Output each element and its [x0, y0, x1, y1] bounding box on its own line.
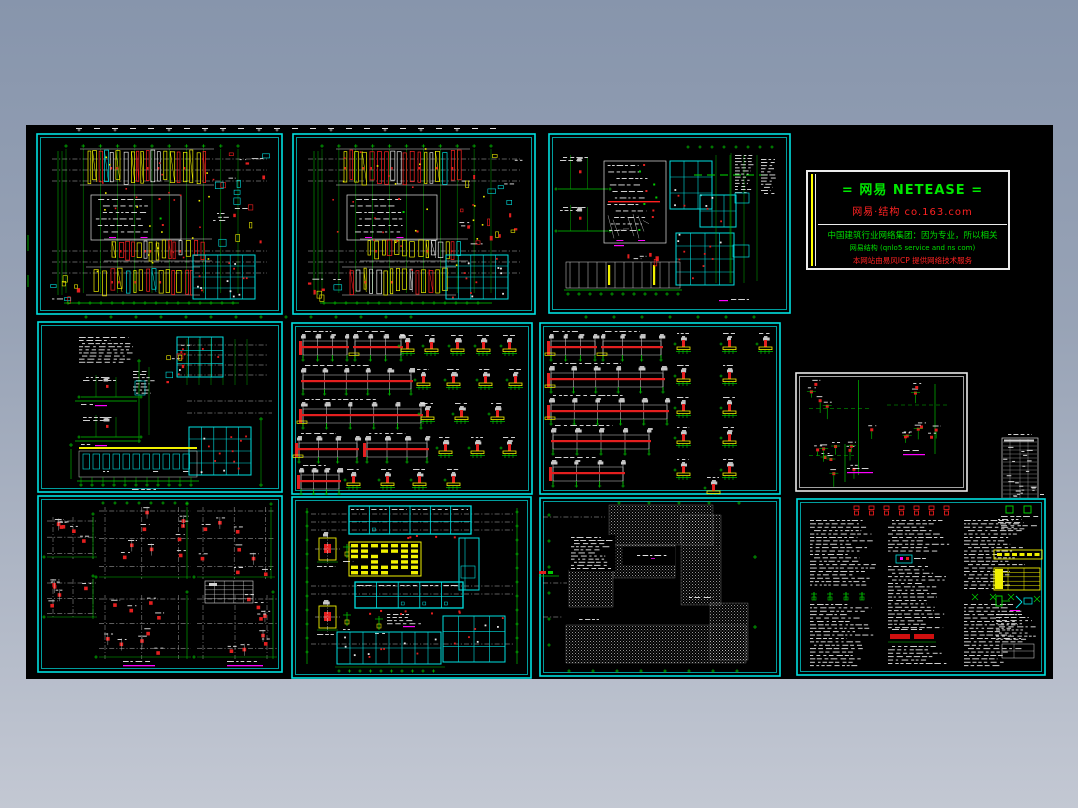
- sheet-column-details: [795, 372, 968, 492]
- sheet-partial-plans: [548, 133, 791, 314]
- netease-title: = 网易 NETEASE =: [818, 179, 1007, 198]
- sheet-roof-plan: [37, 321, 283, 493]
- sheet-foundation-hatch: [539, 497, 781, 677]
- netease-watermark-panel: = 网易 NETEASE = 网易·结构 co.163.com 中国建筑行业网络…: [806, 170, 1010, 270]
- schedule-table-strip: [1000, 433, 1040, 505]
- watermark-header: = 网易 NETEASE = 网易·结构 co.163.com: [818, 172, 1007, 225]
- netease-slogan: 中国建筑行业网络集团：因为专业，所以相关: [818, 229, 1007, 241]
- sheet-beam-details-2: [539, 322, 781, 495]
- watermark-body: 中国建筑行业网络集团：因为专业，所以相关 网易结构 (qnlo5 service…: [818, 225, 1007, 268]
- netease-url-line: 网易结构 (qnlo5 service and ns com): [818, 243, 1007, 253]
- sheet-framing-plan-2: [292, 133, 536, 315]
- yellow-accent-stripe: [811, 174, 813, 266]
- sheet-beam-details-1: [291, 322, 533, 495]
- netease-support-line: 本网站由易风ICP 提供网络技术服务: [818, 255, 1007, 266]
- cad-preview-canvas: = 网易 NETEASE = 网易·结构 co.163.com 中国建筑行业网络…: [26, 125, 1053, 679]
- sheet-column-layout: [37, 495, 283, 673]
- sheet-framing-plan-1: [36, 133, 283, 315]
- netease-subtitle: 网易·结构 co.163.com: [818, 203, 1007, 218]
- inner-border-line: [815, 174, 816, 266]
- cad-preview-page: = 网易 NETEASE = 网易·结构 co.163.com 中国建筑行业网络…: [0, 0, 1078, 808]
- sheet-floor-plan-legend: [291, 496, 532, 679]
- sheet-general-notes: [796, 498, 1046, 676]
